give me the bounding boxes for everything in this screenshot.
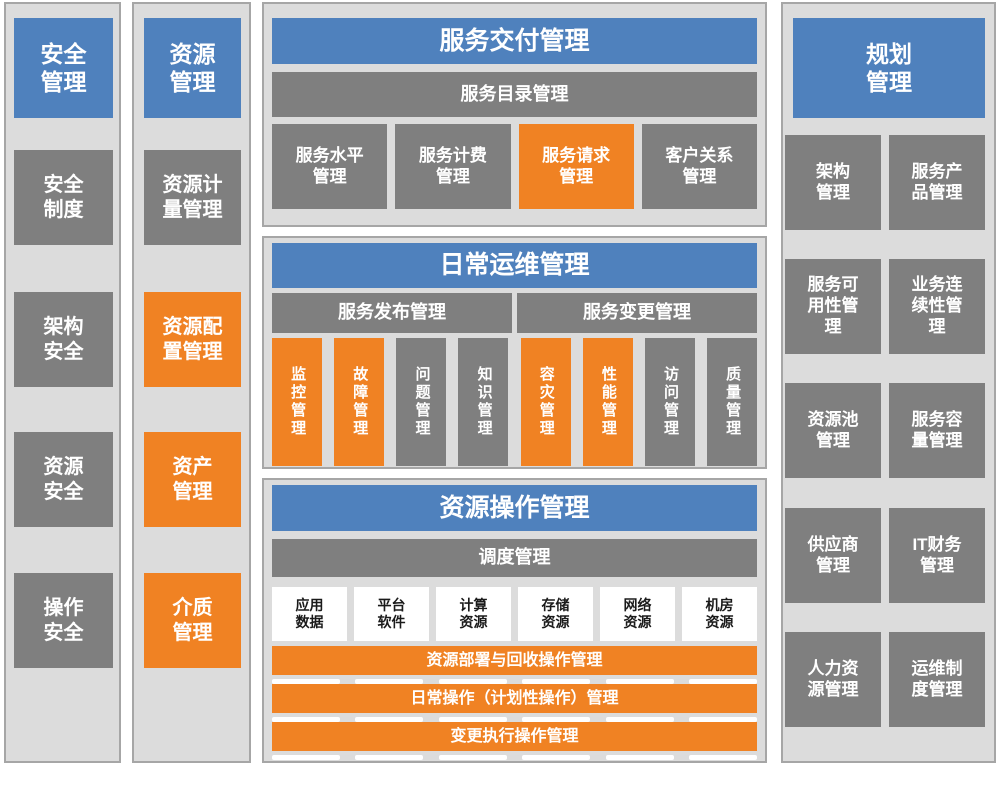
service-change-bar: 服务变更管理	[517, 293, 757, 333]
app-data-box: 应用 数据	[272, 587, 347, 641]
compute-resource-box: 计算 资源	[436, 587, 511, 641]
daily-ops-bars-row: 服务发布管理 服务变更管理	[272, 293, 757, 333]
resource-box-metering: 资源计 量管理	[144, 150, 241, 245]
resource-pool-box: 资源池 管理	[785, 383, 881, 478]
resource-ops-panel: 资源操作管理 调度管理 应用 数据 平台 软件 计算 资源 存储 资源 网络 资…	[262, 478, 767, 763]
service-billing-box: 服务计费 管理	[395, 124, 510, 209]
daily-ops-panel: 日常运维管理 服务发布管理 服务变更管理 监控管理 故障管理 问题管理 知识管理…	[262, 236, 767, 469]
resource-types-row: 应用 数据 平台 软件 计算 资源 存储 资源 网络 资源 机房 资源	[272, 587, 757, 641]
planning-panel: 规划 管理 架构 管理 服务产 品管理 服务可 用性管 理 业务连 续性管 理 …	[781, 2, 996, 763]
service-delivery-title: 服务交付管理	[272, 18, 757, 64]
service-request-box: 服务请求 管理	[519, 124, 634, 209]
resource-panel-title: 资源 管理	[144, 18, 241, 118]
daily-ops-title: 日常运维管理	[272, 243, 757, 288]
resource-box-configuration: 资源配 置管理	[144, 292, 241, 387]
security-panel: 安全 管理 安全 制度 架构 安全 资源 安全 操作 安全	[4, 2, 121, 763]
separator-dashes	[272, 755, 757, 760]
quality-box: 质量管理	[707, 338, 757, 466]
service-delivery-panel: 服务交付管理 服务目录管理 服务水平 管理 服务计费 管理 服务请求 管理 客户…	[262, 2, 767, 227]
change-execution-ops-bar: 变更执行操作管理	[272, 722, 757, 751]
incident-box: 故障管理	[334, 338, 384, 466]
resource-box-asset: 资产 管理	[144, 432, 241, 527]
security-panel-title: 安全 管理	[14, 18, 113, 118]
planning-panel-title: 规划 管理	[793, 18, 985, 118]
storage-resource-box: 存储 资源	[518, 587, 593, 641]
itsm-framework-diagram: 安全 管理 安全 制度 架构 安全 资源 安全 操作 安全 资源 管理 资源计 …	[0, 0, 1000, 785]
resource-box-media: 介质 管理	[144, 573, 241, 668]
performance-box: 性能管理	[583, 338, 633, 466]
datacenter-resource-box: 机房 资源	[682, 587, 757, 641]
network-resource-box: 网络 资源	[600, 587, 675, 641]
business-continuity-box: 业务连 续性管 理	[889, 259, 985, 354]
service-product-box: 服务产 品管理	[889, 135, 985, 230]
it-finance-box: IT财务 管理	[889, 508, 985, 603]
hr-mgmt-box: 人力资 源管理	[785, 632, 881, 727]
access-box: 访问管理	[645, 338, 695, 466]
supplier-mgmt-box: 供应商 管理	[785, 508, 881, 603]
daily-planned-ops-bar: 日常操作（计划性操作）管理	[272, 684, 757, 713]
security-box-architecture: 架构 安全	[14, 292, 113, 387]
monitoring-box: 监控管理	[272, 338, 322, 466]
service-release-bar: 服务发布管理	[272, 293, 512, 333]
ops-policy-box: 运维制 度管理	[889, 632, 985, 727]
service-catalog-bar: 服务目录管理	[272, 72, 757, 117]
architecture-mgmt-box: 架构 管理	[785, 135, 881, 230]
deploy-reclaim-ops-bar: 资源部署与回收操作管理	[272, 646, 757, 675]
disaster-recovery-box: 容灾管理	[521, 338, 571, 466]
service-availability-box: 服务可 用性管 理	[785, 259, 881, 354]
problem-box: 问题管理	[396, 338, 446, 466]
daily-ops-vbox-row: 监控管理 故障管理 问题管理 知识管理 容灾管理 性能管理 访问管理 质量管理	[272, 338, 757, 466]
service-delivery-row: 服务水平 管理 服务计费 管理 服务请求 管理 客户关系 管理	[272, 124, 757, 209]
resource-panel: 资源 管理 资源计 量管理 资源配 置管理 资产 管理 介质 管理	[132, 2, 251, 763]
customer-relation-box: 客户关系 管理	[642, 124, 757, 209]
security-box-operation: 操作 安全	[14, 573, 113, 668]
service-capacity-box: 服务容 量管理	[889, 383, 985, 478]
security-box-resource: 资源 安全	[14, 432, 113, 527]
scheduling-bar: 调度管理	[272, 539, 757, 577]
resource-ops-title: 资源操作管理	[272, 485, 757, 531]
knowledge-box: 知识管理	[458, 338, 508, 466]
platform-software-box: 平台 软件	[354, 587, 429, 641]
security-box-policy: 安全 制度	[14, 150, 113, 245]
service-level-box: 服务水平 管理	[272, 124, 387, 209]
